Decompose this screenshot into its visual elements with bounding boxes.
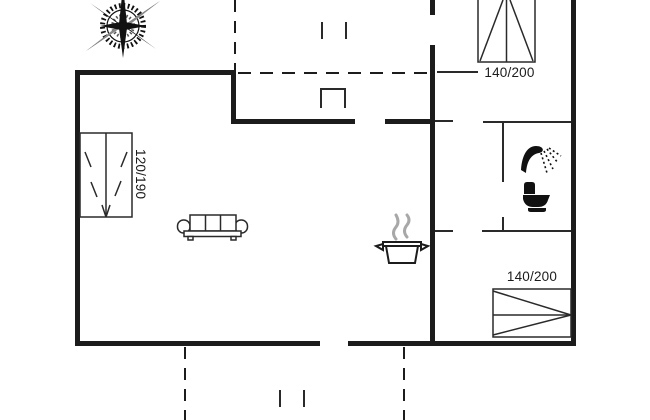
- dashed-line-terrace-top-horizontal: [238, 72, 434, 74]
- terrace-step-mark-right: [303, 390, 305, 407]
- wall-exterior-top: [75, 70, 236, 75]
- wall-hall-top-left: [435, 120, 453, 122]
- wall-hall-bottom-right: [482, 230, 571, 232]
- terrace-step-mark-left: [279, 390, 281, 407]
- bed-size-label-bottom: 140/200: [492, 269, 572, 284]
- wall-interior-center: [430, 45, 435, 346]
- double-bed-bottom-icon: [492, 288, 572, 338]
- toilet-icon: [521, 180, 554, 213]
- wall-bedroom-bath-top: [483, 121, 571, 123]
- floorplan: 120/190: [0, 0, 650, 420]
- compass-rose-icon: [84, 0, 162, 60]
- wall-porch-front-right: [385, 119, 435, 124]
- porch-frame-left: [320, 88, 322, 108]
- wall-interior-center-top: [430, 0, 435, 15]
- wall-bathroom-left-upper: [502, 122, 504, 182]
- wall-notch-vertical: [231, 70, 236, 124]
- double-bed-top-icon: [477, 0, 536, 63]
- porch-frame-right: [344, 88, 346, 108]
- cooking-pot-icon: [375, 211, 429, 265]
- bed-size-label-left: 120/190: [133, 149, 148, 199]
- shower-icon: [517, 145, 561, 177]
- porch-step-mark-left: [321, 22, 323, 39]
- dashed-line-terrace-bottom-right: [403, 347, 405, 420]
- sofa-icon: [176, 212, 249, 242]
- dashed-line-terrace-top-vertical: [234, 0, 236, 70]
- dashed-line-terrace-bottom-left: [184, 347, 186, 420]
- wall-porch-front-left: [231, 119, 355, 124]
- bed-size-label-top: 140/200: [480, 65, 539, 80]
- wall-exterior-bottom-left: [75, 341, 320, 346]
- wall-hall-bottom-left: [435, 230, 453, 232]
- porch-frame-top: [320, 88, 346, 90]
- wall-exterior-bottom-right: [348, 341, 576, 346]
- steam-icon: [394, 215, 410, 239]
- bedroom-detail-line: [437, 71, 478, 73]
- double-bed-left-icon: [79, 132, 133, 218]
- porch-step-mark-right: [345, 22, 347, 39]
